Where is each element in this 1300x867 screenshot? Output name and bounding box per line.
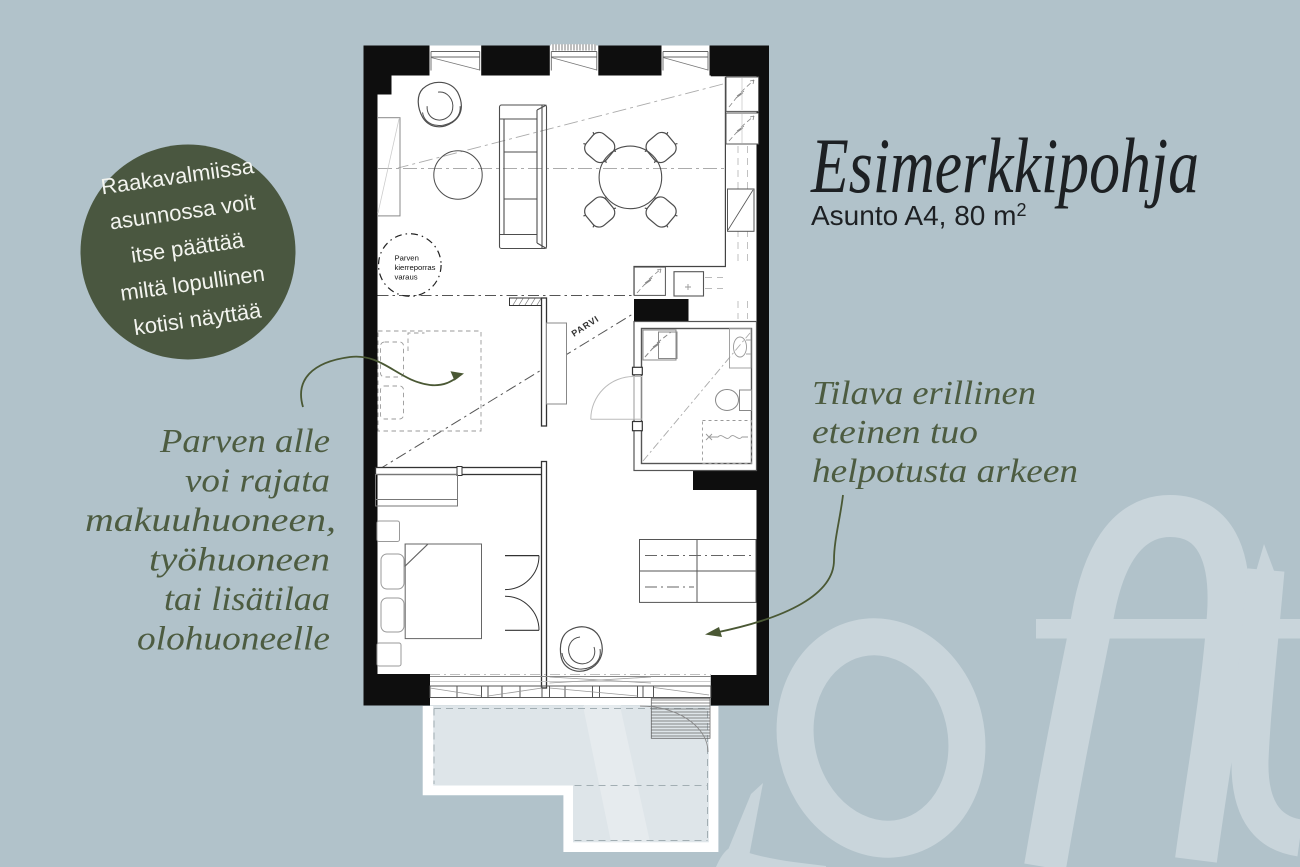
svg-text:Parven: Parven xyxy=(395,254,419,263)
svg-text:Asunto A4, 80 m2: Asunto A4, 80 m2 xyxy=(811,200,1026,231)
svg-text:Tilava erillinen: Tilava erillinen xyxy=(812,375,1036,412)
svg-text:tai lisätilaa: tai lisätilaa xyxy=(164,581,330,618)
svg-text:olohuoneelle: olohuoneelle xyxy=(137,621,330,658)
svg-text:makuuhuoneen,: makuuhuoneen, xyxy=(85,502,336,539)
svg-text:työhuoneen: työhuoneen xyxy=(149,542,330,579)
svg-text:Esimerkkipohja: Esimerkkipohja xyxy=(810,122,1199,209)
svg-text:varaus: varaus xyxy=(395,273,418,282)
svg-text:voi rajata: voi rajata xyxy=(185,463,330,500)
svg-text:helpotusta arkeen: helpotusta arkeen xyxy=(812,453,1078,490)
svg-text:Parven alle: Parven alle xyxy=(159,423,330,460)
svg-text:kierreporras: kierreporras xyxy=(395,263,436,272)
svg-text:eteinen tuo: eteinen tuo xyxy=(812,414,978,451)
